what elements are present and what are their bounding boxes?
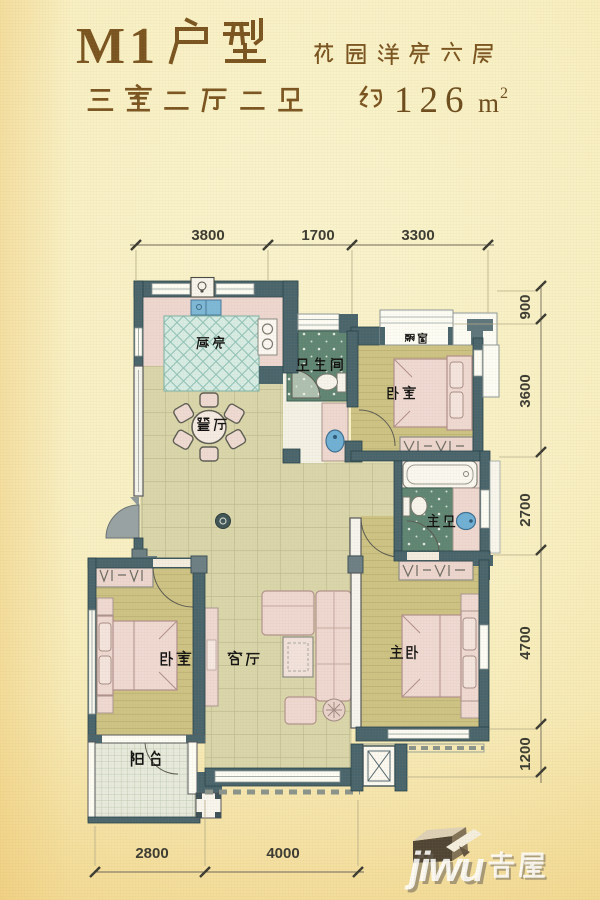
svg-text:900: 900 bbox=[517, 294, 534, 319]
svg-text:4000: 4000 bbox=[266, 845, 299, 862]
svg-text:2: 2 bbox=[500, 85, 508, 102]
svg-text:2800: 2800 bbox=[135, 845, 168, 862]
svg-text:3600: 3600 bbox=[517, 374, 534, 407]
svg-text:3800: 3800 bbox=[191, 227, 224, 244]
svg-text:4700: 4700 bbox=[517, 626, 534, 659]
svg-text:jiwu: jiwu bbox=[404, 843, 484, 890]
svg-text:1200: 1200 bbox=[517, 737, 534, 770]
svg-text:m: m bbox=[478, 88, 499, 118]
svg-text:1700: 1700 bbox=[301, 227, 334, 244]
svg-text:126: 126 bbox=[394, 80, 471, 121]
svg-text:3300: 3300 bbox=[401, 227, 434, 244]
svg-text:2700: 2700 bbox=[517, 493, 534, 526]
svg-text:M1: M1 bbox=[76, 18, 159, 75]
